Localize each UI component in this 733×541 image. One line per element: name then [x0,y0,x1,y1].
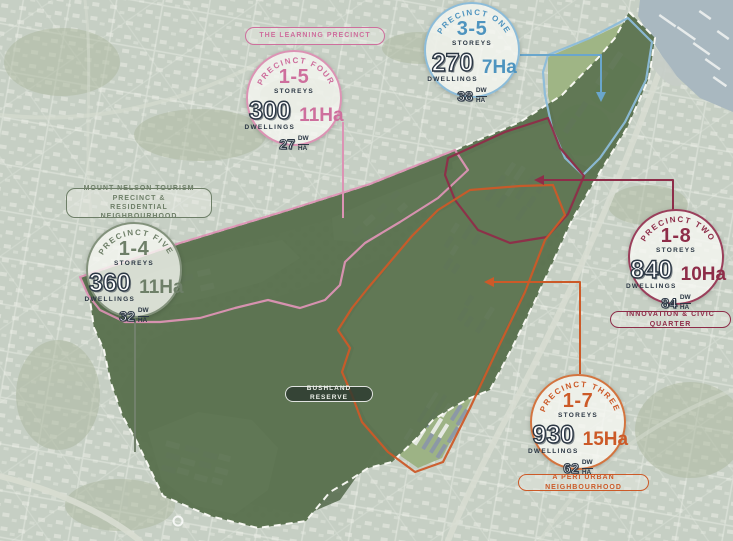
svg-text:PRECINCT FOUR: PRECINCT FOUR [256,56,337,87]
peri-urban-neighbourhood-label: A PERI URBAN NEIGHBOURHOOD [518,474,649,491]
precinct-name-arc: PRECINCT TWO [627,208,729,310]
bushland-reserve-label: BUSHLAND RESERVE [285,386,373,402]
masterplan-map: THE LEARNING PRECINCT MOUNT NELSON TOURI… [0,0,733,541]
precinct-one-circle: PRECINCT ONE 3-5 STOREYS 270 DWELLINGS 7… [424,2,520,98]
precinct-name: PRECINCT FIVE [97,228,175,257]
svg-text:PRECINCT FIVE: PRECINCT FIVE [97,228,175,257]
learning-precinct-label: THE LEARNING PRECINCT [245,27,385,45]
svg-text:PRECINCT THREE: PRECINCT THREE [538,380,622,413]
precinct-five-circle: PRECINCT FIVE 1-4 STOREYS 360 DWELLINGS … [86,222,182,318]
precinct-name-arc: PRECINCT ONE [423,1,525,103]
svg-text:PRECINCT ONE: PRECINCT ONE [435,8,512,36]
mount-nelson-label: MOUNT NELSON TOURISM PRECINCT & RESIDENT… [66,188,212,218]
mount-nelson-text: MOUNT NELSON TOURISM PRECINCT & RESIDENT… [73,184,205,222]
innovation-civic-quarter-text: INNOVATION & CIVIC QUARTER [617,310,724,329]
precinct-name-arc: PRECINCT FOUR [245,49,347,151]
learning-precinct-text: THE LEARNING PRECINCT [259,31,370,40]
bushland-reserve-text: BUSHLAND RESERVE [292,385,366,403]
precinct-four-circle: PRECINCT FOUR 1-5 STOREYS 300 DWELLINGS … [246,50,342,146]
precinct-name: PRECINCT FOUR [256,56,337,87]
precinct-name: PRECINCT THREE [538,380,622,413]
precinct-three-circle: PRECINCT THREE 1-7 STOREYS 930 DWELLINGS… [530,374,626,470]
precinct-two-circle: PRECINCT TWO 1-8 STOREYS 840 DWELLINGS 1… [628,209,724,305]
svg-text:PRECINCT TWO: PRECINCT TWO [639,215,717,243]
precinct-name: PRECINCT TWO [639,215,717,243]
precinct-name-arc: PRECINCT THREE [529,373,631,475]
precinct-name: PRECINCT ONE [435,8,512,36]
innovation-civic-quarter-label: INNOVATION & CIVIC QUARTER [610,311,731,328]
precinct-name-arc: PRECINCT FIVE [85,221,187,323]
